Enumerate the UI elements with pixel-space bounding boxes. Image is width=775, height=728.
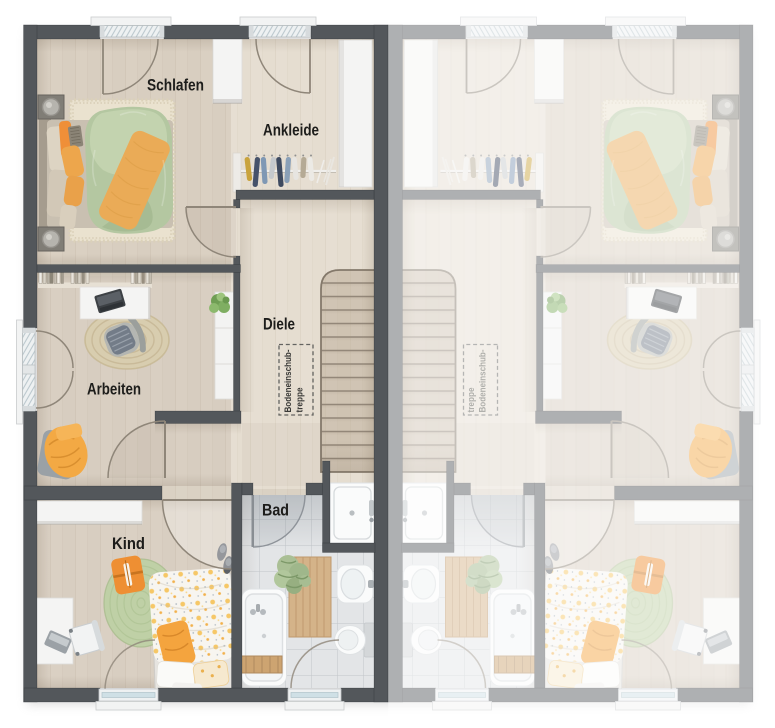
svg-text:Arbeiten: Arbeiten [87, 380, 141, 399]
svg-text:Bad: Bad [262, 501, 289, 520]
svg-text:treppe: treppe [295, 388, 306, 413]
svg-text:Bodeneinschub-: Bodeneinschub- [478, 350, 489, 413]
svg-text:Kind: Kind [112, 534, 145, 553]
svg-text:Diele: Diele [263, 315, 295, 334]
svg-text:Ankleide: Ankleide [263, 121, 319, 140]
svg-text:Bodeneinschub-: Bodeneinschub- [283, 350, 294, 413]
svg-text:treppe: treppe [466, 388, 477, 413]
svg-text:Schlafen: Schlafen [147, 76, 204, 95]
